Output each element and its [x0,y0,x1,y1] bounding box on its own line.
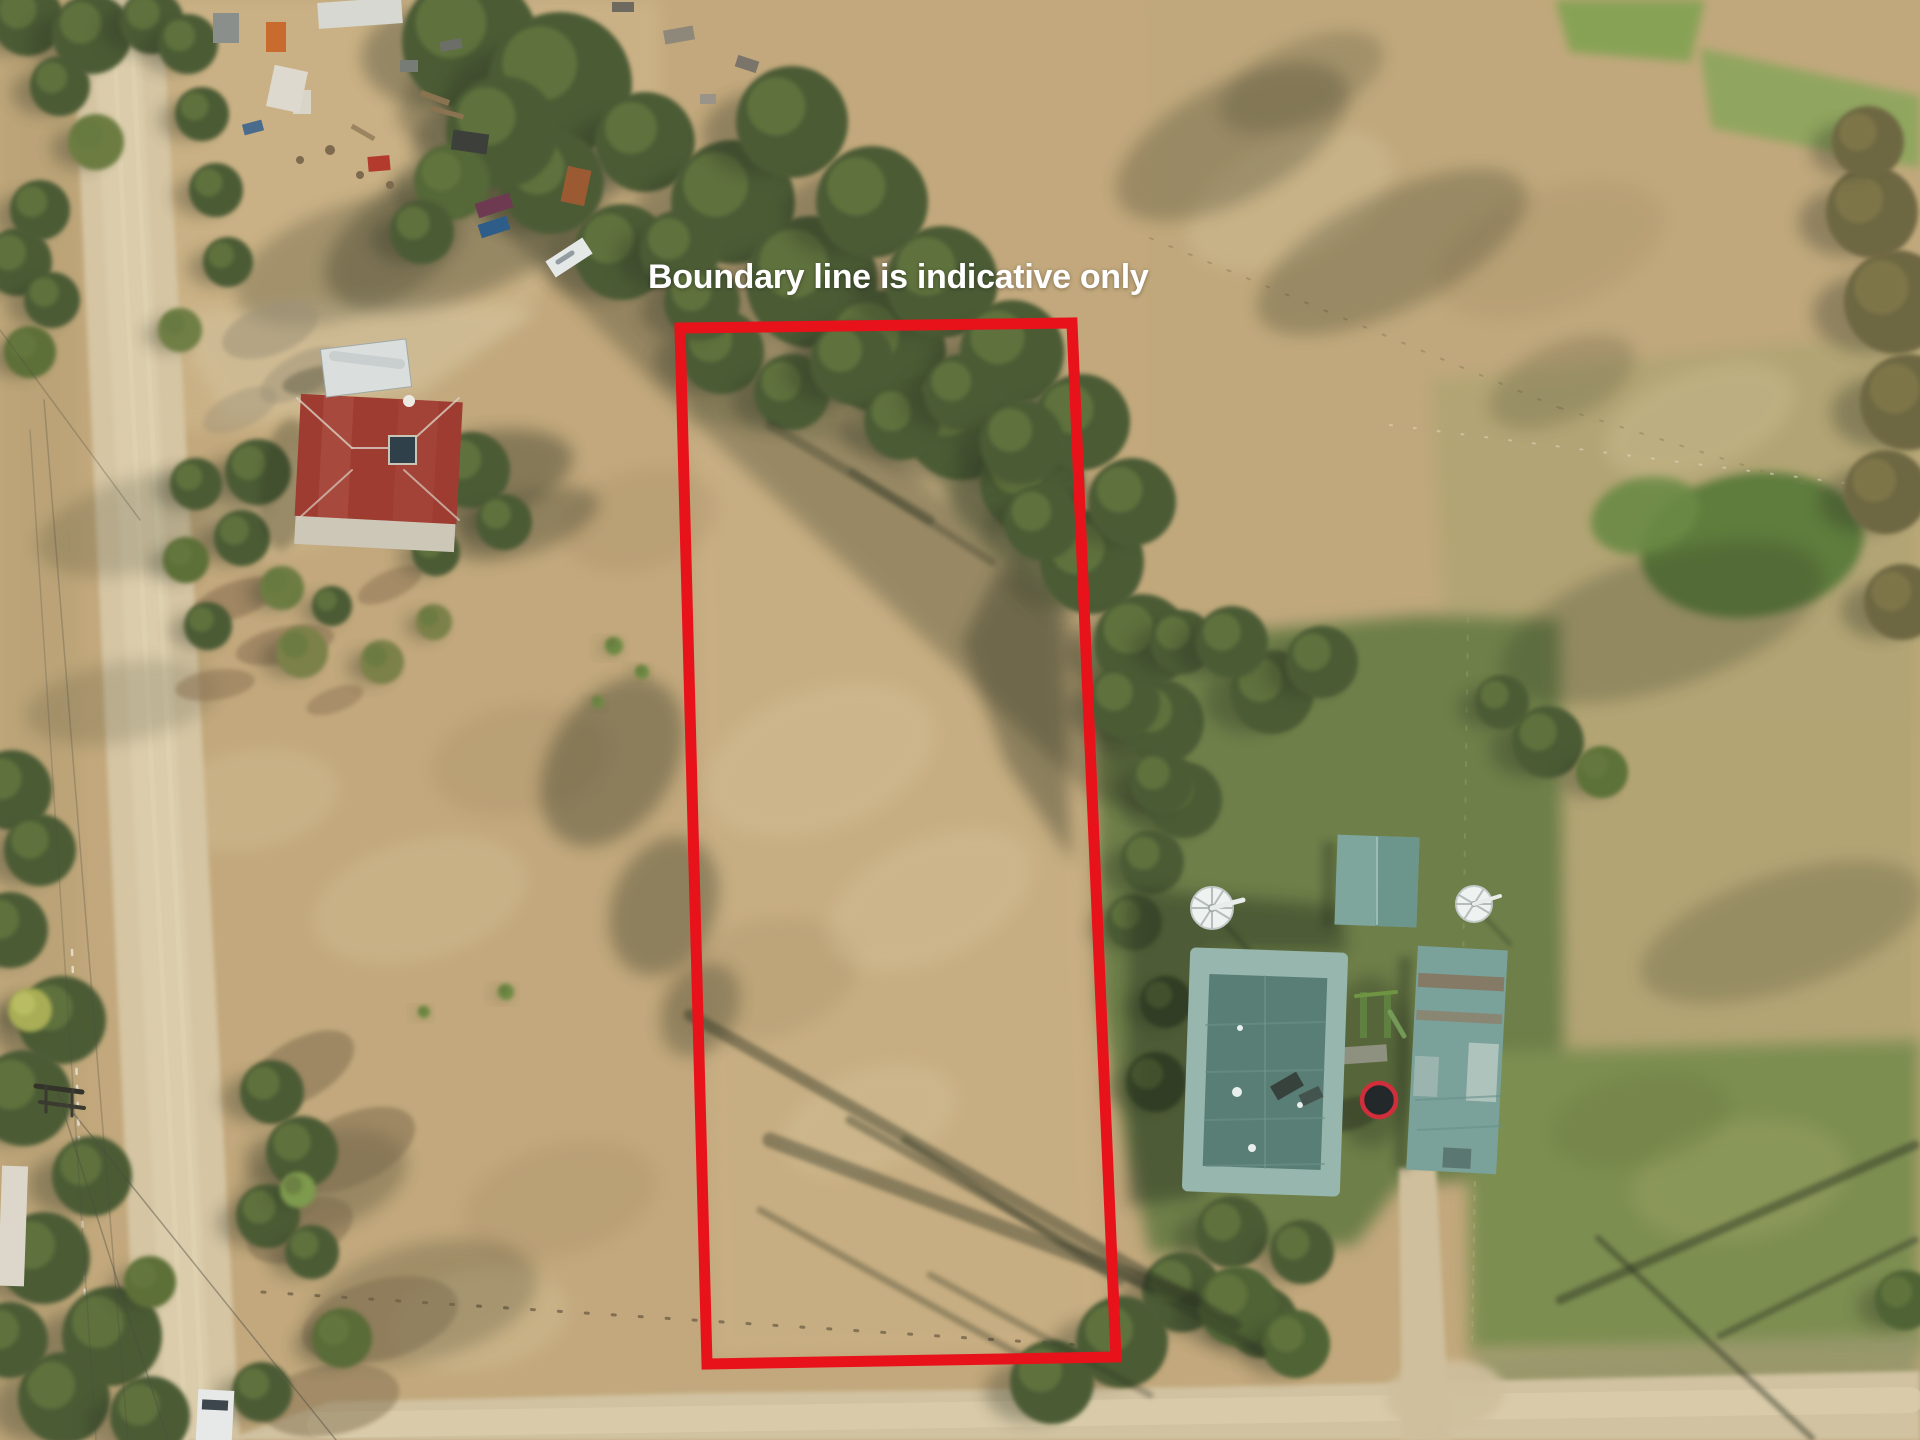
tree-canopy-highlight [932,362,972,402]
farmyard-item-red-car [367,155,390,172]
tree-canopy-highlight [1276,1226,1309,1259]
tree-canopy-highlight [422,152,462,192]
tree-canopy-highlight [273,1123,310,1160]
tree-canopy-highlight [482,500,511,529]
tree-canopy-highlight [290,1230,318,1258]
tree-canopy-highlight [12,992,35,1015]
tree-canopy-highlight [164,20,195,51]
junk [386,181,394,189]
aerial-photo-canvas [0,0,1920,1440]
tree-canopy-highlight [827,157,885,215]
junk [325,145,335,155]
scene-layers [0,0,1920,1440]
tree-canopy-highlight [264,570,287,593]
tree-canopy-highlight [593,697,599,703]
tree-canopy-highlight [284,1176,303,1195]
long-shed-door [1442,1147,1471,1168]
tree-canopy-highlight [1097,467,1143,513]
satellite-dish [403,395,415,407]
tree-canopy-highlight [1839,113,1876,150]
tree-canopy-highlight [74,120,103,149]
tree-canopy-highlight [1854,260,1908,314]
tree-canopy-highlight [189,607,214,632]
tree-canopy-highlight [238,1368,269,1399]
tree-canopy-highlight [1012,492,1052,532]
tree-canopy-highlight [16,186,47,217]
tree-canopy-highlight [316,590,337,611]
small-shed-roof-dark [1375,836,1419,927]
tree-canopy-highlight [364,644,387,667]
ute-windshield [202,1399,228,1410]
long-shed-light-panel [1466,1043,1499,1102]
tree-canopy-highlight [1136,756,1169,789]
tree-canopy-highlight [1881,1276,1912,1307]
grey-box [400,60,418,72]
tree-canopy-highlight [208,242,234,268]
tree-canopy-highlight [232,446,266,480]
tree-canopy-highlight [818,328,862,372]
tree-canopy-highlight [1519,713,1556,750]
tree-canopy-highlight [60,2,102,44]
tree-canopy-highlight [194,168,222,196]
tree-canopy-highlight [500,986,508,994]
tree-canopy-highlight [1870,364,1920,414]
tree-canopy-highlight [129,1261,156,1288]
white-ute [196,1389,235,1440]
tree-canopy-highlight [607,639,616,648]
tree-canopy-highlight [281,631,308,658]
farmyard-item-tractor [266,22,286,52]
tree-canopy-highlight [1581,751,1608,778]
tree-canopy-highlight [1835,175,1883,223]
trampoline [1362,1083,1396,1117]
roof-skylight [389,436,416,464]
junk [296,156,304,164]
tree-canopy-highlight [11,821,48,858]
play-gym-post [1360,992,1367,1038]
tree-canopy-highlight [1480,680,1508,708]
tree-canopy-highlight [175,463,202,490]
roof-vent [1232,1087,1242,1097]
tree-canopy-highlight [36,62,67,93]
tree-canopy-highlight [1203,613,1240,650]
tree-canopy-highlight [162,312,185,335]
tree-canopy-highlight [648,218,690,260]
tree-canopy-highlight [419,1007,425,1013]
roof-vent [1248,1144,1256,1152]
shed-shadow [1322,842,1336,928]
top-item [700,94,716,104]
tree-canopy-highlight [1203,1203,1240,1240]
tree-canopy-highlight [605,102,657,154]
tree-canopy-highlight [220,516,249,545]
tree-canopy-highlight [1852,458,1896,502]
tree-canopy-highlight [420,608,439,627]
tree-canopy-highlight [636,666,643,673]
boundary-caption: Boundary line is indicative only [648,258,1149,297]
tree-canopy-highlight [1872,572,1912,612]
tree-canopy-highlight [747,77,805,135]
tree-canopy-highlight [988,408,1032,452]
tree-canopy-highlight [72,1296,124,1348]
tree-canopy-highlight [318,1314,349,1345]
junk [356,171,364,179]
tree-canopy-highlight [1126,836,1159,869]
tree-canopy-highlight [180,92,208,120]
tree-canopy-highlight [1095,673,1132,710]
tree-canopy-highlight [168,542,192,566]
tree-canopy-highlight [246,1066,279,1099]
long-shed-light-panel [1413,1056,1439,1097]
top-item [612,2,634,12]
aerial-photo: Boundary line is indicative only [0,0,1920,1440]
roof-vent [1237,1025,1243,1031]
farmyard-item-shed [213,13,239,43]
tree-canopy-highlight [396,206,429,239]
tree-canopy-highlight [30,278,59,307]
white-building-edge [0,1166,28,1287]
tree-canopy-highlight [9,331,36,358]
tree-canopy-highlight [1269,1317,1304,1352]
red-roof-streak [318,395,354,518]
tree-canopy-highlight [1293,633,1330,670]
